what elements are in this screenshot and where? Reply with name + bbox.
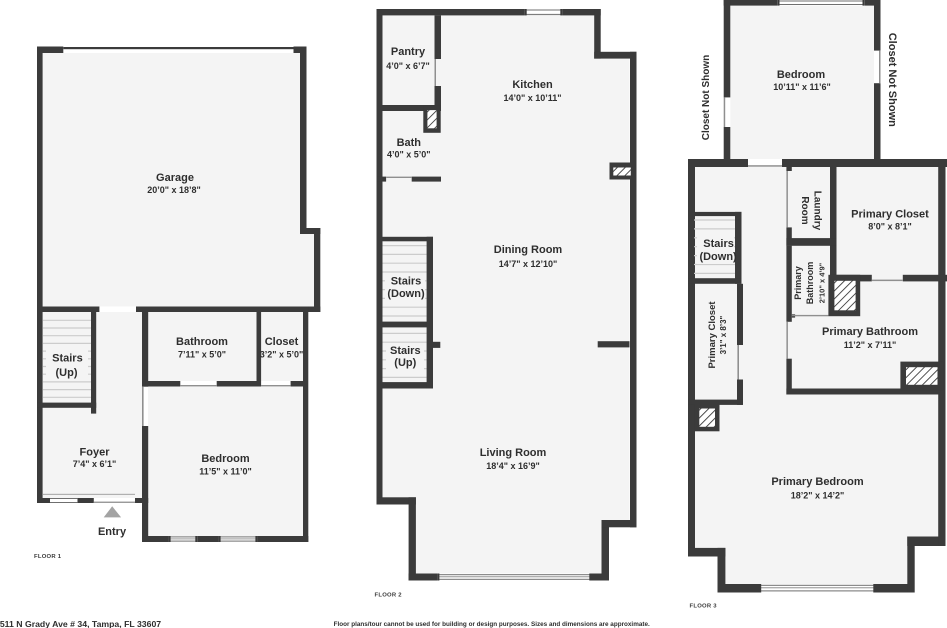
svg-text:18’2" x 14’2": 18’2" x 14’2" [791, 491, 845, 501]
svg-text:Laundry: Laundry [812, 191, 823, 231]
svg-text:Primary Closet: Primary Closet [851, 209, 929, 221]
svg-text:Closet Not Shown: Closet Not Shown [701, 55, 712, 141]
svg-text:Stairs: Stairs [52, 353, 83, 365]
svg-text:14’0" x 10’11": 14’0" x 10’11" [503, 93, 561, 103]
svg-text:Primary Bedroom: Primary Bedroom [771, 476, 864, 488]
svg-text:Entry: Entry [98, 526, 127, 538]
svg-text:Bath: Bath [397, 137, 422, 149]
svg-text:20’0" x 18’8": 20’0" x 18’8" [147, 185, 201, 195]
svg-text:2511 N Grady Ave # 34, Tampa,: 2511 N Grady Ave # 34, Tampa, FL 33607 [0, 619, 161, 628]
svg-text:Dining Room: Dining Room [494, 244, 563, 256]
svg-text:Primary: Primary [793, 266, 803, 300]
svg-text:Garage: Garage [156, 172, 194, 184]
svg-text:Stairs: Stairs [390, 345, 421, 357]
svg-text:Living Room: Living Room [480, 447, 547, 459]
svg-text:(Up): (Up) [394, 357, 416, 369]
svg-text:7’4" x 6’1": 7’4" x 6’1" [73, 459, 117, 469]
svg-text:2’10" x 4’9": 2’10" x 4’9" [818, 262, 827, 303]
svg-text:4’0" x 5’0": 4’0" x 5’0" [387, 150, 431, 160]
svg-text:Bathroom: Bathroom [805, 262, 815, 305]
svg-text:Floor plans/tour cannot be use: Floor plans/tour cannot be used for buil… [334, 621, 650, 628]
svg-text:Bedroom: Bedroom [777, 69, 826, 81]
svg-text:Closet: Closet [265, 336, 299, 348]
svg-text:Bathroom: Bathroom [176, 336, 228, 348]
svg-text:8’0" x 8’1": 8’0" x 8’1" [868, 222, 912, 232]
svg-text:10’11" x 11’6": 10’11" x 11’6" [773, 82, 831, 92]
svg-text:Primary Closet: Primary Closet [707, 301, 718, 369]
svg-text:7’11" x 5’0": 7’11" x 5’0" [178, 350, 226, 360]
svg-text:Primary Bathroom: Primary Bathroom [822, 326, 918, 338]
svg-text:4’0" x 6’7": 4’0" x 6’7" [386, 61, 430, 71]
svg-text:Bedroom: Bedroom [201, 453, 250, 465]
svg-text:(Down): (Down) [699, 251, 737, 263]
svg-text:FLOOR 2: FLOOR 2 [375, 593, 403, 599]
svg-text:(Down): (Down) [387, 288, 425, 300]
svg-text:(Up): (Up) [56, 367, 78, 379]
svg-text:11’5" x 11’0": 11’5" x 11’0" [199, 467, 252, 477]
svg-text:18’4" x 16’9": 18’4" x 16’9" [486, 461, 540, 471]
svg-text:Stairs: Stairs [391, 276, 422, 288]
svg-text:Stairs: Stairs [703, 238, 734, 250]
svg-text:Kitchen: Kitchen [512, 79, 553, 91]
svg-text:11’2" x 7’11": 11’2" x 7’11" [844, 340, 897, 350]
svg-text:Pantry: Pantry [391, 46, 426, 58]
svg-text:FLOOR 1: FLOOR 1 [34, 554, 62, 560]
svg-text:3’2" x 5’0": 3’2" x 5’0" [260, 350, 304, 360]
svg-text:14’7" x 12’10": 14’7" x 12’10" [499, 259, 558, 269]
svg-text:Room: Room [799, 196, 810, 224]
svg-text:Closet Not Shown: Closet Not Shown [886, 33, 898, 127]
svg-text:FLOOR 3: FLOOR 3 [690, 604, 718, 610]
svg-text:Foyer: Foyer [80, 447, 111, 459]
svg-text:3’1" x 8’3": 3’1" x 8’3" [719, 315, 728, 354]
